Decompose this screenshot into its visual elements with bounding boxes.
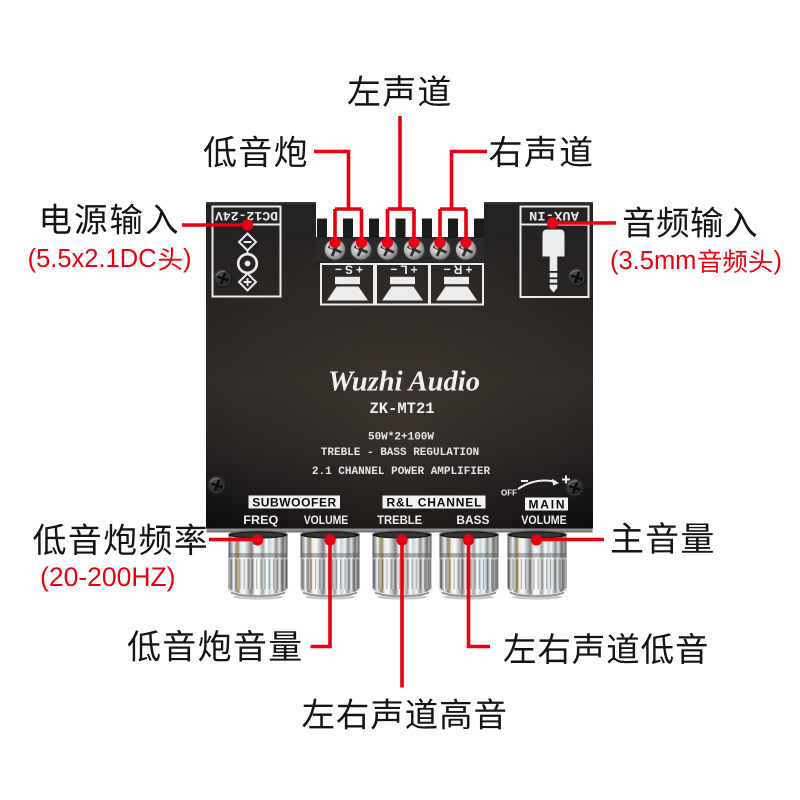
svg-text:): ) <box>774 247 783 275</box>
svg-text:+R−: +R− <box>441 263 473 277</box>
svg-text:(20-200HZ): (20-200HZ) <box>40 562 176 592</box>
svg-text:R&L CHANNEL: R&L CHANNEL <box>387 495 482 509</box>
svg-text:FREQ: FREQ <box>243 513 278 527</box>
svg-text:TREBLE - BASS REGULATION: TREBLE - BASS REGULATION <box>321 447 479 459</box>
svg-text:TREBLE: TREBLE <box>377 513 422 527</box>
svg-text:ZK-MT21: ZK-MT21 <box>369 400 434 418</box>
svg-text:Wuzhi Audio: Wuzhi Audio <box>328 367 480 398</box>
svg-text:VOLUME: VOLUME <box>521 513 567 527</box>
svg-text:): ) <box>183 245 192 273</box>
svg-text:SUBWOOFER: SUBWOOFER <box>252 495 336 509</box>
svg-text:(5.5x2.1DC: (5.5x2.1DC <box>28 245 157 273</box>
svg-text:OFF: OFF <box>501 489 517 498</box>
svg-text:(3.5mm: (3.5mm <box>610 247 696 275</box>
svg-text:+L−: +L− <box>387 263 417 277</box>
svg-text:BASS: BASS <box>456 513 489 527</box>
svg-text:50W*2+100W: 50W*2+100W <box>368 432 434 444</box>
svg-text:+S−: +S− <box>332 263 363 277</box>
svg-text:MAIN: MAIN <box>529 497 565 511</box>
svg-text:2.1 CHANNEL POWER AMPLIFIER: 2.1 CHANNEL POWER AMPLIFIER <box>312 466 491 478</box>
svg-text:VOLUME: VOLUME <box>304 513 349 527</box>
